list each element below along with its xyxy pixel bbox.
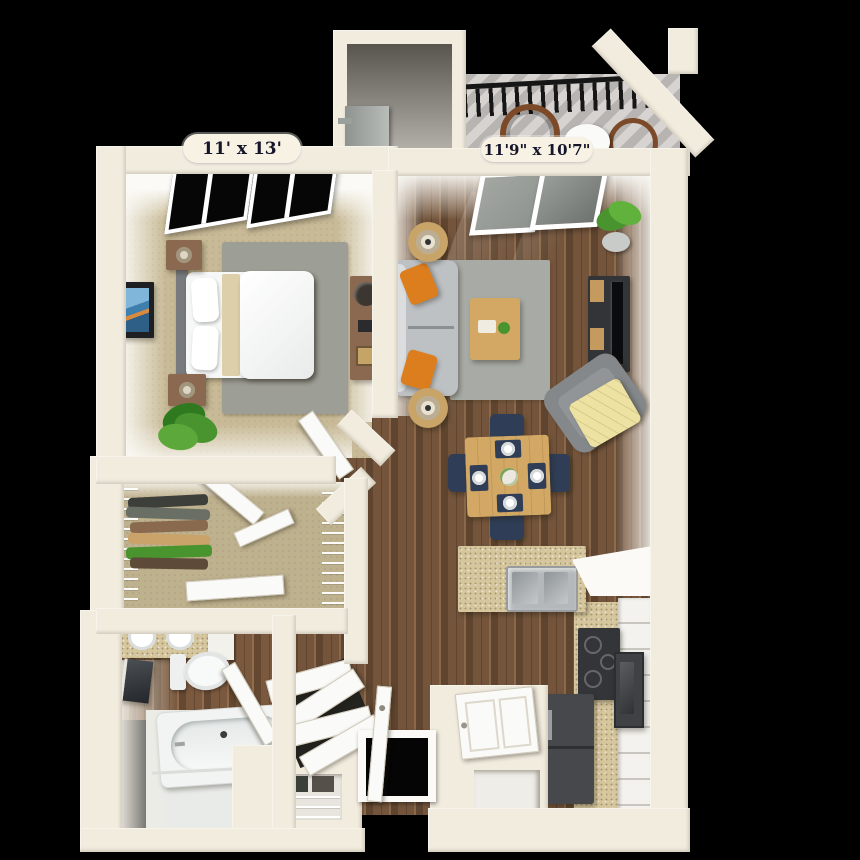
lamp-finial — [425, 405, 431, 411]
closet-clothes-stack — [124, 494, 218, 570]
door-handle — [379, 705, 386, 712]
tv-screen — [612, 282, 623, 364]
wall-bath-laundry-divider — [272, 615, 296, 840]
bed-pillow — [190, 277, 219, 323]
folded-clothes — [130, 520, 208, 534]
wall-bedroom-living-divider — [372, 170, 398, 418]
wall-closet-bottom — [96, 608, 348, 634]
coffee-table — [470, 298, 520, 360]
burner — [584, 636, 602, 654]
bedroom-dimensions-label: 11' x 13' — [183, 134, 301, 163]
tv-stand-wood-drawer — [590, 328, 604, 350]
nightstand — [166, 240, 202, 270]
coffee-table-tray — [478, 320, 496, 333]
corner-plant — [594, 202, 642, 256]
bed-pillow-2 — [191, 325, 219, 370]
balcony-corner-wall — [668, 28, 698, 74]
lamp-finial — [425, 239, 431, 245]
wall-closet-top — [96, 456, 336, 484]
floorplan-render: 11' x 13' 11'9" x 10'7" — [0, 0, 860, 860]
wall-left-lower — [80, 610, 122, 850]
tv-stand-wood-drawer — [590, 280, 604, 302]
side-table-2 — [408, 388, 448, 428]
table-centerpiece — [500, 468, 519, 487]
fridge-door-seam — [544, 746, 594, 749]
coffee-table-plant — [498, 322, 510, 334]
sink-basin — [512, 572, 538, 604]
dining-table — [465, 435, 552, 518]
door-panel-inset — [465, 699, 500, 752]
wall-right — [650, 148, 688, 852]
wall-bath-bottom — [80, 828, 365, 852]
folded-clothes — [126, 507, 210, 521]
bathtub-faucet — [175, 742, 185, 747]
stored-items — [312, 776, 334, 792]
bedroom-dimensions-text: 11' x 13' — [202, 139, 282, 159]
burner — [584, 670, 602, 688]
refrigerator — [544, 694, 594, 804]
water-heater-pipe — [338, 118, 352, 124]
wall-bottom-right — [428, 808, 690, 852]
plant-pot — [602, 232, 630, 252]
side-table — [408, 222, 448, 262]
wall-art-canvas — [125, 288, 149, 332]
wall-left-upper — [96, 146, 126, 476]
fridge-handle — [548, 710, 552, 740]
table-lamp — [176, 247, 192, 263]
entry-closet-door — [455, 686, 539, 760]
folded-clothes — [130, 557, 208, 569]
oven-glass — [620, 662, 634, 714]
living-dimensions-text: 11'9" x 10'7" — [484, 141, 591, 159]
living-dimensions-label: 11'9" x 10'7" — [481, 137, 593, 162]
sofa-seat-divider — [408, 326, 454, 329]
bathroom-mirror — [120, 658, 154, 703]
window-mullion — [201, 167, 214, 224]
door-panel-inset — [498, 696, 531, 749]
wall-hall-left — [344, 478, 368, 664]
wall-oven — [614, 652, 644, 728]
sink-basin — [544, 572, 568, 604]
bed-duvet — [240, 271, 314, 379]
kitchen-sink — [506, 566, 578, 612]
table-lamp — [179, 382, 195, 398]
bed-blanket-fold — [222, 274, 240, 376]
